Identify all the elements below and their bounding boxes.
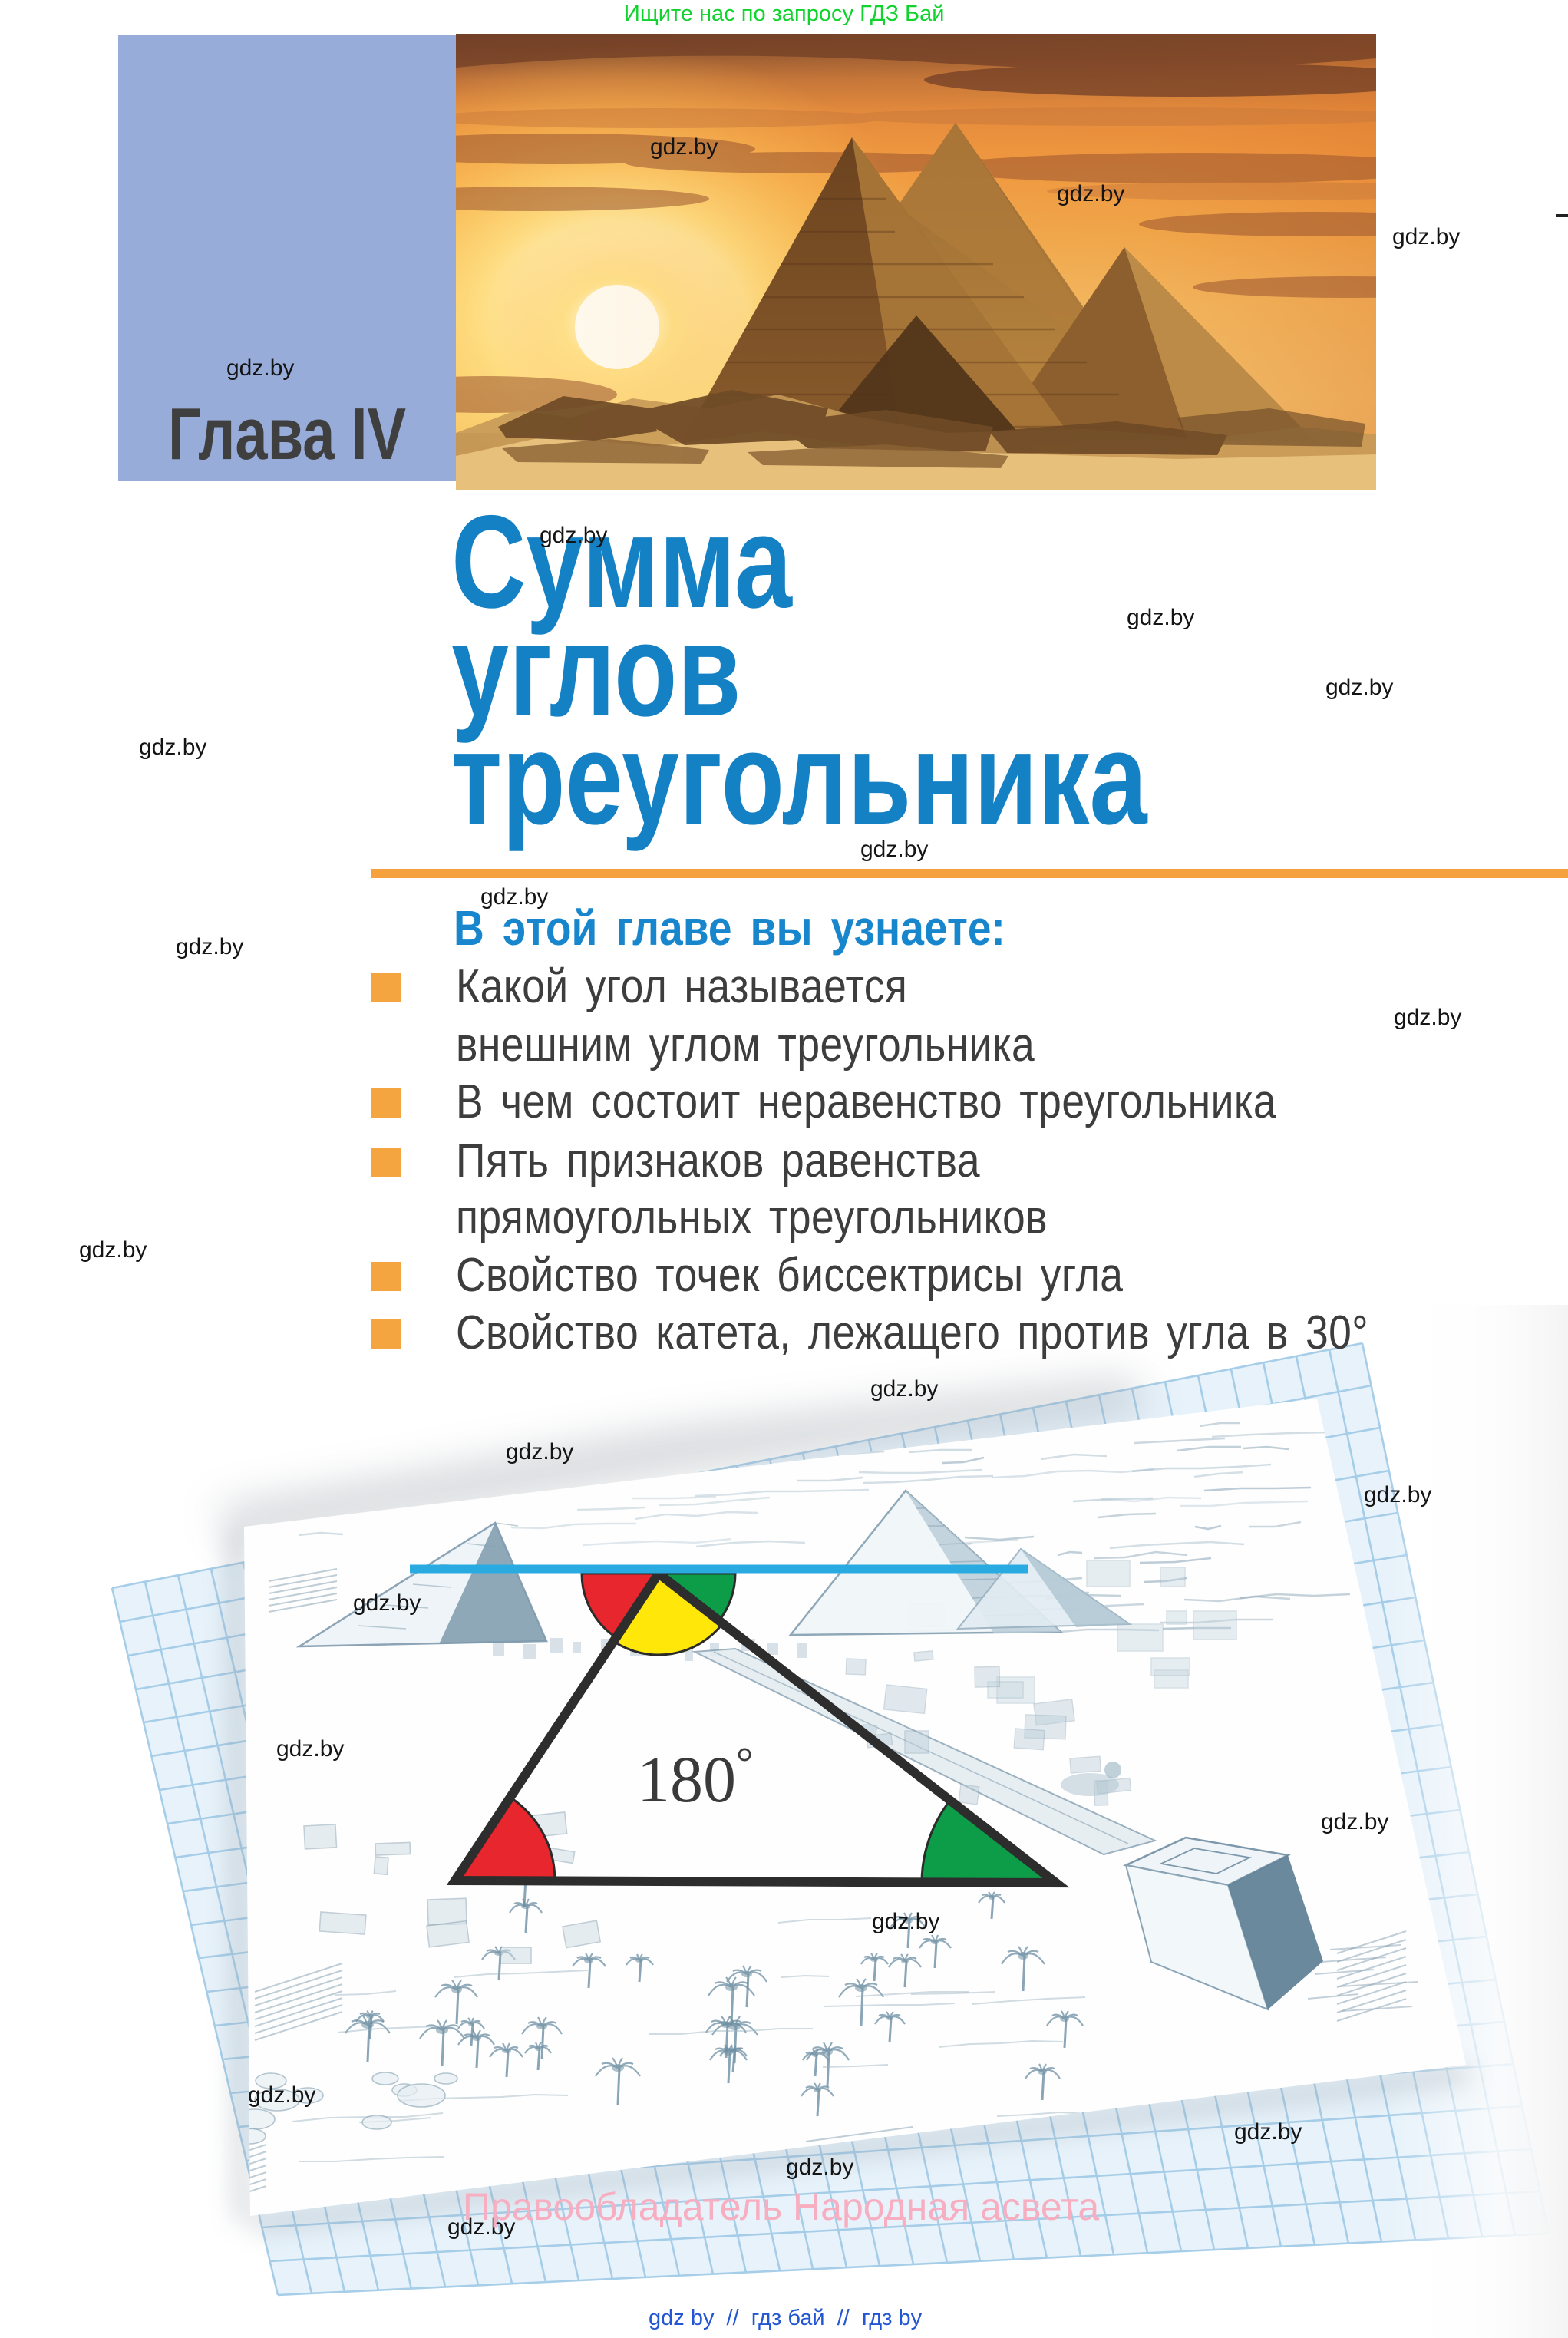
svg-text:180°: 180° [637, 1739, 753, 1816]
